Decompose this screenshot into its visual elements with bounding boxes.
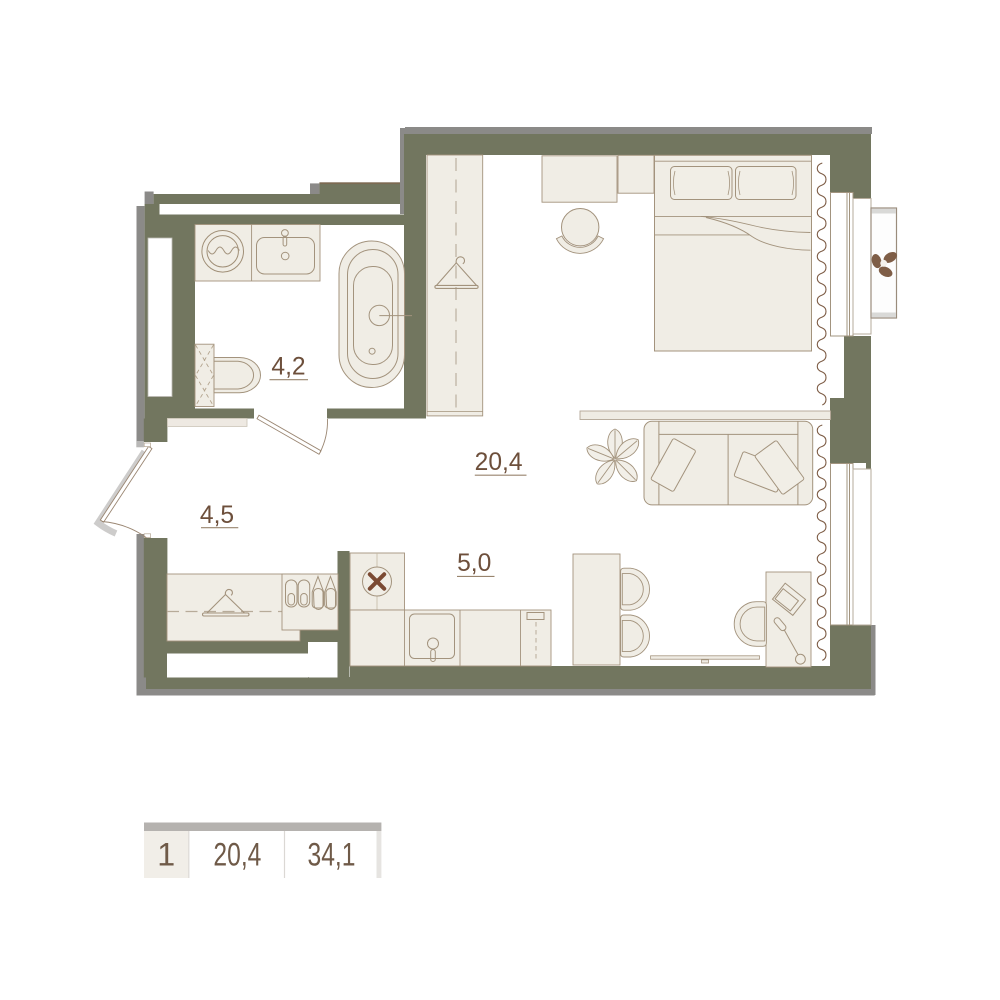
svg-text:1: 1: [157, 837, 175, 873]
svg-text:20,4: 20,4: [213, 837, 261, 873]
svg-text:5,0: 5,0: [457, 550, 491, 577]
svg-text:4,5: 4,5: [200, 502, 234, 529]
svg-text:20,4: 20,4: [475, 449, 523, 476]
svg-text:34,1: 34,1: [308, 837, 356, 873]
svg-text:4,2: 4,2: [271, 353, 305, 380]
